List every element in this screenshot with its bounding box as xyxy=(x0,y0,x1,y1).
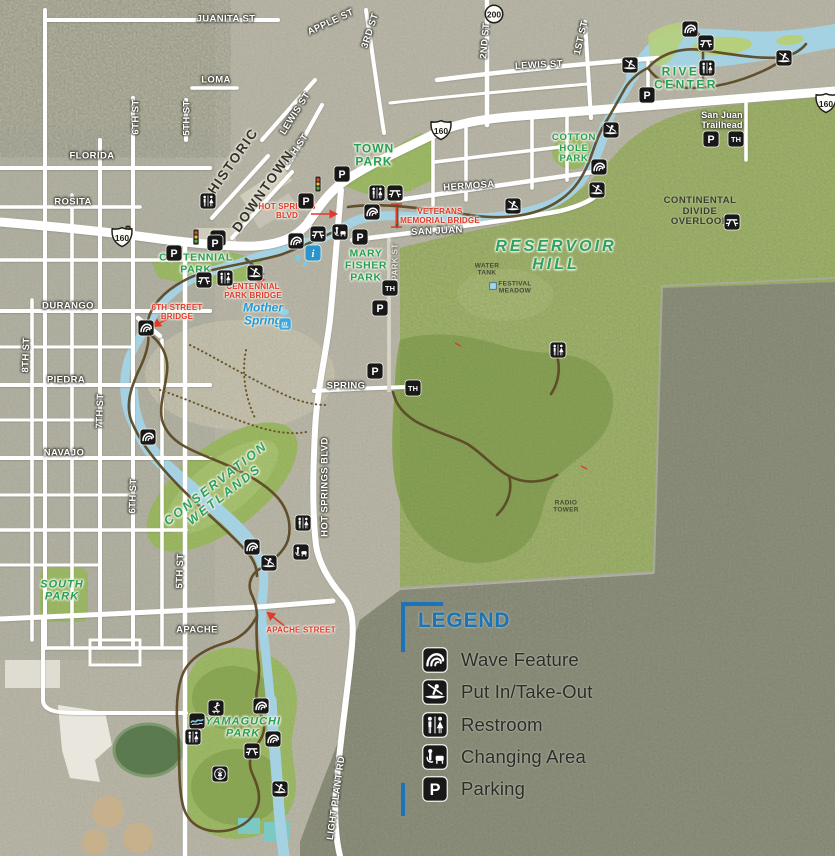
legend-bracket-bottom xyxy=(401,783,405,816)
put-in-take-out-icon xyxy=(422,679,448,705)
legend-item-changing-area: Changing Area xyxy=(422,741,636,773)
legend-bracket-top xyxy=(401,602,443,652)
legend-title: LEGEND xyxy=(418,609,636,633)
legend-item-parking: Parking xyxy=(422,773,636,805)
changing-area-icon xyxy=(422,744,448,770)
legend-panel: LEGEND Wave Feature Put In/Take-Out Rest… xyxy=(401,600,636,818)
legend-item-wave-feature: Wave Feature xyxy=(422,644,636,676)
legend-item-label: Parking xyxy=(461,778,525,800)
legend-item-label: Changing Area xyxy=(461,746,586,768)
legend-item-label: Wave Feature xyxy=(461,649,579,671)
riverwalk-trail-map[interactable]: P TH i xyxy=(0,0,835,856)
legend-item-label: Restroom xyxy=(461,714,543,736)
restroom-icon xyxy=(422,712,448,738)
parking-icon xyxy=(422,776,448,802)
legend-item-label: Put In/Take-Out xyxy=(461,681,593,703)
legend-item-put-in-take-out: Put In/Take-Out xyxy=(422,676,636,708)
legend-item-restroom: Restroom xyxy=(422,709,636,741)
